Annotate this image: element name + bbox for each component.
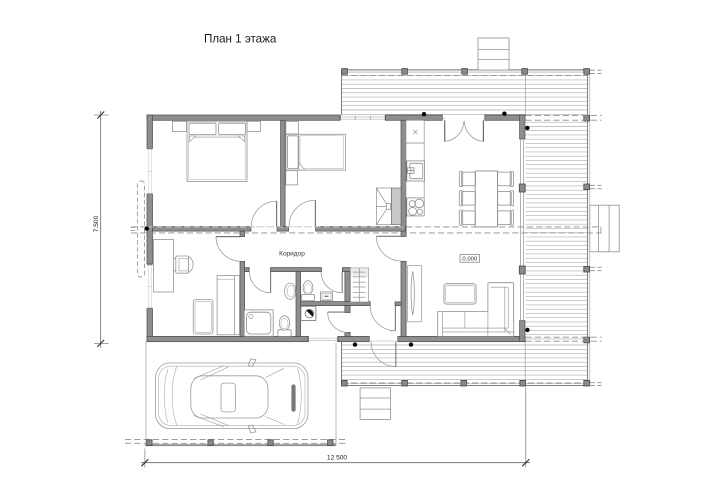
svg-text:7.500: 7.500 [93, 215, 100, 232]
svg-text:0.000: 0.000 [462, 257, 477, 263]
svg-text:12 500: 12 500 [327, 454, 348, 461]
svg-text:План 1 этажа: План 1 этажа [204, 33, 277, 46]
svg-text:Коридор: Коридор [279, 251, 305, 258]
